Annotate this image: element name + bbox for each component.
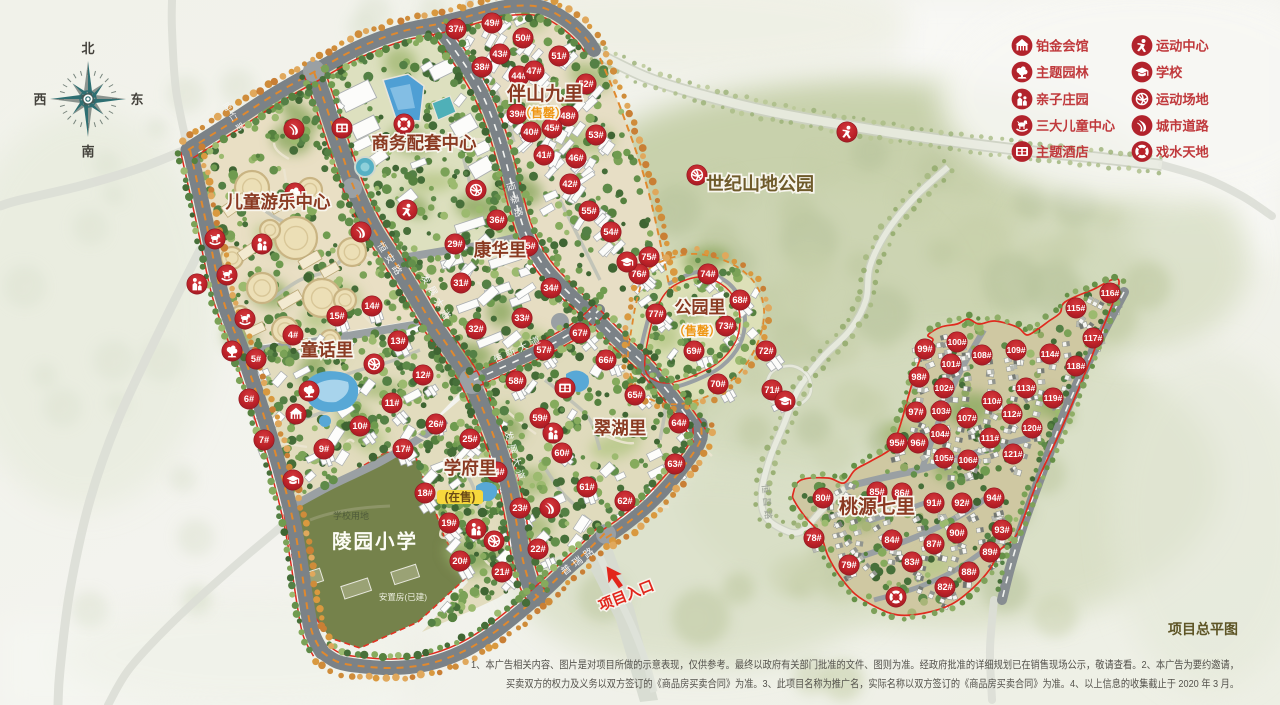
- svg-text:25#: 25#: [462, 434, 477, 444]
- svg-text:26#: 26#: [428, 419, 443, 429]
- svg-text:安置房(已建): 安置房(已建): [379, 592, 427, 602]
- svg-text:康华里: 康华里: [474, 240, 527, 260]
- svg-text:46#: 46#: [568, 153, 583, 163]
- svg-text:学校: 学校: [1156, 64, 1183, 80]
- svg-text:107#: 107#: [957, 413, 976, 423]
- svg-text:101#: 101#: [941, 359, 960, 369]
- svg-text:118#: 118#: [1067, 361, 1086, 371]
- svg-text:74#: 74#: [700, 269, 715, 279]
- svg-text:33#: 33#: [514, 313, 529, 323]
- svg-text:84#: 84#: [884, 535, 899, 545]
- svg-text:111#: 111#: [981, 433, 999, 443]
- svg-text:62#: 62#: [617, 496, 632, 506]
- svg-text:104#: 104#: [930, 429, 949, 439]
- svg-text:45#: 45#: [544, 123, 559, 133]
- svg-text:89#: 89#: [982, 547, 997, 557]
- svg-text:10#: 10#: [352, 421, 367, 431]
- svg-text:65#: 65#: [627, 390, 642, 400]
- svg-text:13#: 13#: [390, 336, 405, 346]
- svg-text:世纪山地公园: 世纪山地公园: [706, 173, 814, 194]
- svg-text:113#: 113#: [1017, 383, 1036, 393]
- svg-text:4#: 4#: [288, 330, 298, 340]
- svg-text:106#: 106#: [958, 455, 977, 465]
- svg-text:43#: 43#: [492, 49, 507, 59]
- svg-text:109#: 109#: [1006, 345, 1025, 355]
- svg-text:40#: 40#: [523, 127, 538, 137]
- svg-text:93#: 93#: [994, 525, 1009, 535]
- svg-text:41#: 41#: [536, 150, 551, 160]
- svg-text:105#: 105#: [934, 453, 953, 463]
- svg-text:（售罄）: （售罄）: [673, 323, 721, 338]
- svg-text:学府里: 学府里: [444, 458, 497, 478]
- svg-text:79#: 79#: [841, 560, 856, 570]
- svg-text:117#: 117#: [1084, 333, 1103, 343]
- svg-text:12#: 12#: [415, 370, 430, 380]
- svg-text:100#: 100#: [947, 337, 966, 347]
- svg-text:童话里: 童话里: [301, 340, 354, 360]
- svg-text:42#: 42#: [562, 179, 577, 189]
- svg-text:买卖双方的权力及义务以双方签订的《商品房买卖合同》为准。3、: 买卖双方的权力及义务以双方签订的《商品房买卖合同》为准。3、此项目名称为推广名，…: [506, 677, 1239, 690]
- svg-text:115#: 115#: [1067, 303, 1086, 313]
- svg-text:75#: 75#: [641, 252, 656, 262]
- svg-text:19#: 19#: [441, 518, 456, 528]
- svg-text:14#: 14#: [364, 301, 379, 311]
- svg-text:119#: 119#: [1044, 393, 1063, 403]
- svg-text:陵园小学: 陵园小学: [332, 530, 418, 553]
- svg-text:72#: 72#: [758, 346, 773, 356]
- svg-text:114#: 114#: [1041, 349, 1060, 359]
- svg-text:120#: 120#: [1022, 423, 1041, 433]
- svg-text:69#: 69#: [686, 346, 701, 356]
- svg-text:95#: 95#: [889, 438, 904, 448]
- svg-text:70#: 70#: [710, 379, 725, 389]
- svg-text:23#: 23#: [512, 503, 527, 513]
- svg-text:99#: 99#: [917, 344, 932, 354]
- svg-text:37#: 37#: [448, 24, 463, 34]
- svg-text:91#: 91#: [926, 498, 941, 508]
- svg-text:78#: 78#: [806, 533, 821, 543]
- svg-text:20#: 20#: [452, 556, 467, 566]
- svg-text:29#: 29#: [447, 239, 462, 249]
- svg-text:77#: 77#: [648, 309, 663, 319]
- svg-text:96#: 96#: [910, 438, 925, 448]
- svg-text:运动场地: 运动场地: [1156, 91, 1209, 107]
- svg-text:翠湖里: 翠湖里: [594, 418, 647, 438]
- svg-text:（售罄）: （售罄）: [519, 105, 567, 120]
- svg-text:三大儿童中心: 三大儿童中心: [1036, 117, 1116, 133]
- svg-text:54#: 54#: [603, 227, 618, 237]
- svg-text:城市道路: 城市道路: [1156, 117, 1210, 133]
- svg-text:55#: 55#: [581, 206, 596, 216]
- svg-text:运动中心: 运动中心: [1156, 37, 1210, 53]
- svg-text:92#: 92#: [954, 498, 969, 508]
- svg-text:9#: 9#: [319, 444, 329, 454]
- svg-text:18#: 18#: [417, 488, 432, 498]
- svg-text:5#: 5#: [251, 354, 261, 364]
- svg-text:(在售): (在售): [445, 490, 476, 504]
- svg-text:7#: 7#: [259, 435, 269, 445]
- svg-text:主题园林: 主题园林: [1036, 64, 1090, 80]
- svg-text:主题酒店: 主题酒店: [1036, 143, 1089, 159]
- svg-text:西: 西: [33, 92, 46, 107]
- svg-text:儿童游乐中心: 儿童游乐中心: [225, 192, 331, 212]
- svg-text:63#: 63#: [667, 459, 682, 469]
- svg-text:98#: 98#: [911, 372, 926, 382]
- svg-text:108#: 108#: [972, 350, 991, 360]
- svg-text:31#: 31#: [453, 278, 468, 288]
- svg-text:58#: 58#: [508, 376, 523, 386]
- svg-text:南: 南: [81, 144, 94, 159]
- svg-text:戏水天地: 戏水天地: [1155, 143, 1209, 159]
- svg-text:21#: 21#: [494, 567, 509, 577]
- svg-text:61#: 61#: [579, 482, 594, 492]
- svg-text:85#: 85#: [869, 487, 884, 497]
- svg-text:11#: 11#: [385, 398, 400, 408]
- svg-text:97#: 97#: [908, 407, 923, 417]
- svg-text:49#: 49#: [484, 18, 499, 28]
- svg-text:22#: 22#: [530, 544, 545, 554]
- svg-text:80#: 80#: [815, 493, 830, 503]
- svg-text:1、本广告相关内容、图片是对项目所做的示意表现，仅供参考。最: 1、本广告相关内容、图片是对项目所做的示意表现，仅供参考。最终以政府有关部门批准…: [471, 658, 1239, 671]
- svg-text:110#: 110#: [983, 396, 1002, 406]
- svg-text:82#: 82#: [937, 582, 952, 592]
- svg-text:88#: 88#: [961, 567, 976, 577]
- svg-text:67#: 67#: [572, 328, 587, 338]
- svg-text:71#: 71#: [764, 385, 779, 395]
- svg-text:公园里: 公园里: [675, 298, 726, 317]
- svg-text:103#: 103#: [931, 406, 950, 416]
- svg-text:53#: 53#: [588, 130, 603, 140]
- svg-text:50#: 50#: [515, 33, 530, 43]
- svg-text:学校用地: 学校用地: [333, 510, 369, 521]
- svg-text:112#: 112#: [1003, 409, 1022, 419]
- svg-text:121#: 121#: [1003, 449, 1022, 459]
- svg-text:90#: 90#: [949, 528, 964, 538]
- svg-text:76#: 76#: [631, 269, 646, 279]
- svg-text:116#: 116#: [1101, 288, 1120, 298]
- svg-text:6#: 6#: [244, 394, 254, 404]
- svg-text:项目总平图: 项目总平图: [1168, 621, 1238, 637]
- svg-text:51#: 51#: [551, 51, 566, 61]
- svg-text:北: 北: [81, 41, 94, 56]
- svg-text:铂金会馆: 铂金会馆: [1036, 37, 1089, 53]
- svg-text:87#: 87#: [926, 539, 941, 549]
- svg-text:60#: 60#: [554, 448, 569, 458]
- svg-text:32#: 32#: [468, 324, 483, 334]
- svg-text:68#: 68#: [732, 295, 747, 305]
- svg-text:83#: 83#: [904, 557, 919, 567]
- svg-text:38#: 38#: [474, 62, 489, 72]
- svg-text:102#: 102#: [934, 383, 953, 393]
- svg-text:桃源七里: 桃源七里: [839, 495, 915, 518]
- svg-text:94#: 94#: [986, 493, 1001, 503]
- svg-text:东: 东: [130, 92, 143, 107]
- svg-text:17#: 17#: [395, 444, 410, 454]
- svg-text:47#: 47#: [526, 66, 541, 76]
- svg-text:15#: 15#: [329, 311, 344, 321]
- svg-text:64#: 64#: [671, 418, 686, 428]
- svg-text:66#: 66#: [598, 355, 613, 365]
- svg-text:34#: 34#: [543, 283, 558, 293]
- svg-text:伴山九里: 伴山九里: [506, 82, 583, 105]
- svg-text:59#: 59#: [532, 413, 547, 423]
- svg-text:36#: 36#: [489, 215, 504, 225]
- svg-text:亲子庄园: 亲子庄园: [1036, 91, 1089, 107]
- svg-text:商务配套中心: 商务配套中心: [372, 133, 477, 153]
